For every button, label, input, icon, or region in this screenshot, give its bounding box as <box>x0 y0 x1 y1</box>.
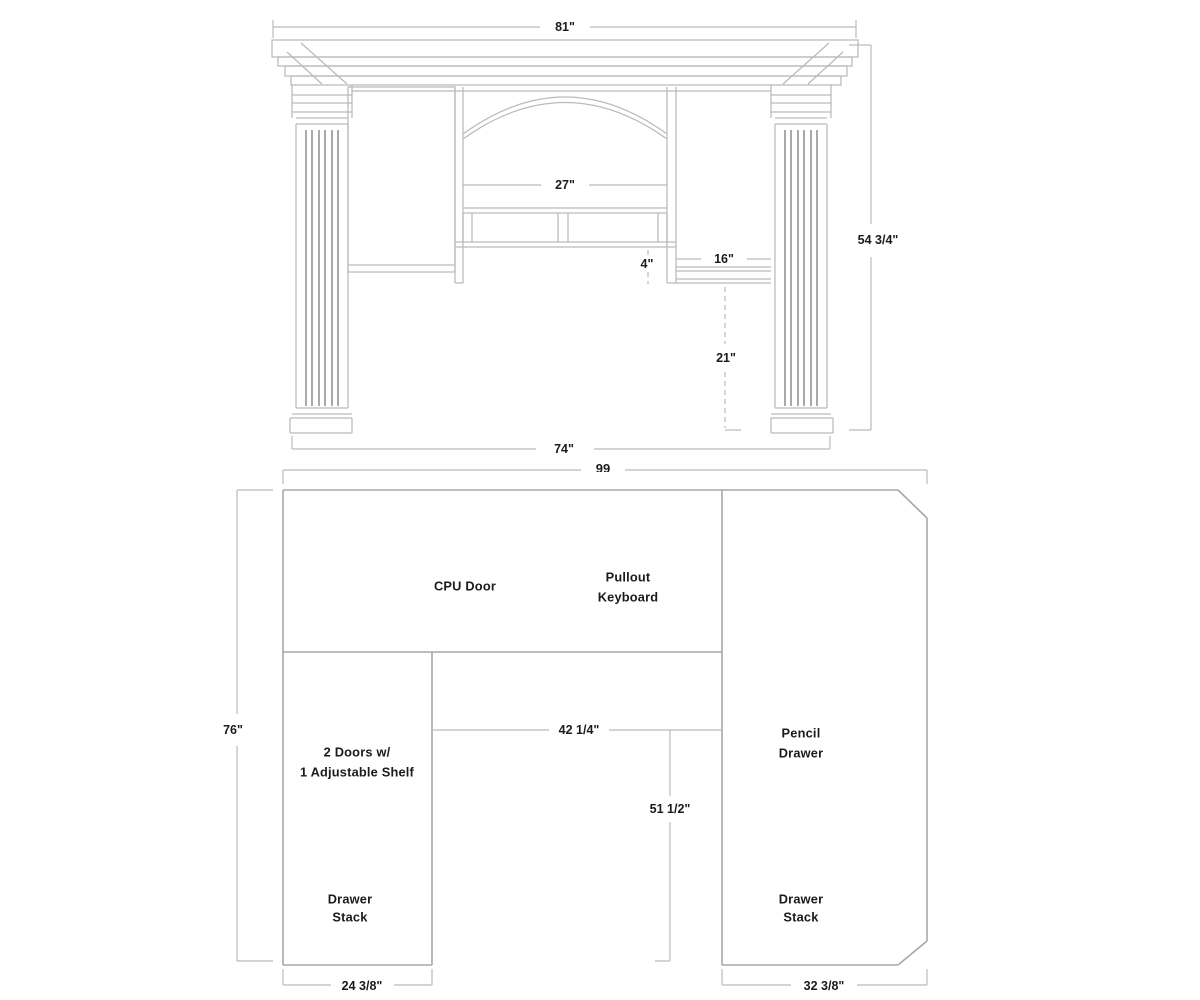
label-pullout-keyboard-line2: Keyboard <box>598 590 659 605</box>
hutch-right-cubby-shelf <box>676 267 771 283</box>
dim-desk-right-pedestal-width: 32 3/8" <box>801 979 848 993</box>
dim-hutch-cubby-width: 16" <box>711 252 737 266</box>
hutch-organizer-shelf <box>455 208 676 247</box>
technical-drawing-canvas <box>0 0 1200 1000</box>
dim-desk-overall-depth: 76" <box>220 723 246 737</box>
dim-hutch-crown-width: 81" <box>552 20 578 34</box>
dim-desk-pedestal-depth: 51 1/2" <box>647 802 694 816</box>
furniture-shop-drawing: 81" 27" 4" 16" 21" 54 3/4" 74" 99 76" 42… <box>0 0 1200 1000</box>
dim-hutch-center-opening: 27" <box>552 178 578 192</box>
label-right-drawer-stack-line1: Drawer <box>779 892 824 907</box>
hutch-dimension-lines <box>273 20 871 449</box>
dim-hutch-body-width: 74" <box>551 442 577 456</box>
dim-hutch-overall-height: 54 3/4" <box>855 233 902 247</box>
label-pullout-keyboard-line1: Pullout <box>606 570 651 585</box>
hutch-left-pilaster <box>290 85 352 433</box>
label-left-cabinet-line2: 1 Adjustable Shelf <box>300 765 414 780</box>
label-cpu-door: CPU Door <box>434 579 496 594</box>
dim-desk-overall-width: 99 <box>592 462 614 472</box>
dim-desk-left-pedestal-width: 24 3/8" <box>339 979 386 993</box>
label-pencil-drawer-line1: Pencil <box>782 726 821 741</box>
desk-outline <box>283 490 927 965</box>
hutch-left-door <box>348 87 455 272</box>
dim-hutch-under-shelf-height: 21" <box>713 351 739 365</box>
label-pencil-drawer-line2: Drawer <box>779 746 824 761</box>
hutch-arched-valance <box>463 97 667 139</box>
label-left-drawer-stack-line2: Stack <box>332 910 367 925</box>
hutch-crown-molding <box>272 40 858 91</box>
label-left-drawer-stack-line1: Drawer <box>328 892 373 907</box>
hutch-right-pilaster <box>771 85 833 433</box>
label-left-cabinet-line1: 2 Doors w/ <box>324 745 391 760</box>
label-right-drawer-stack-line2: Stack <box>783 910 818 925</box>
dim-desk-kneehole-width: 42 1/4" <box>556 723 603 737</box>
dim-hutch-shelf-clearance: 4" <box>638 257 657 271</box>
